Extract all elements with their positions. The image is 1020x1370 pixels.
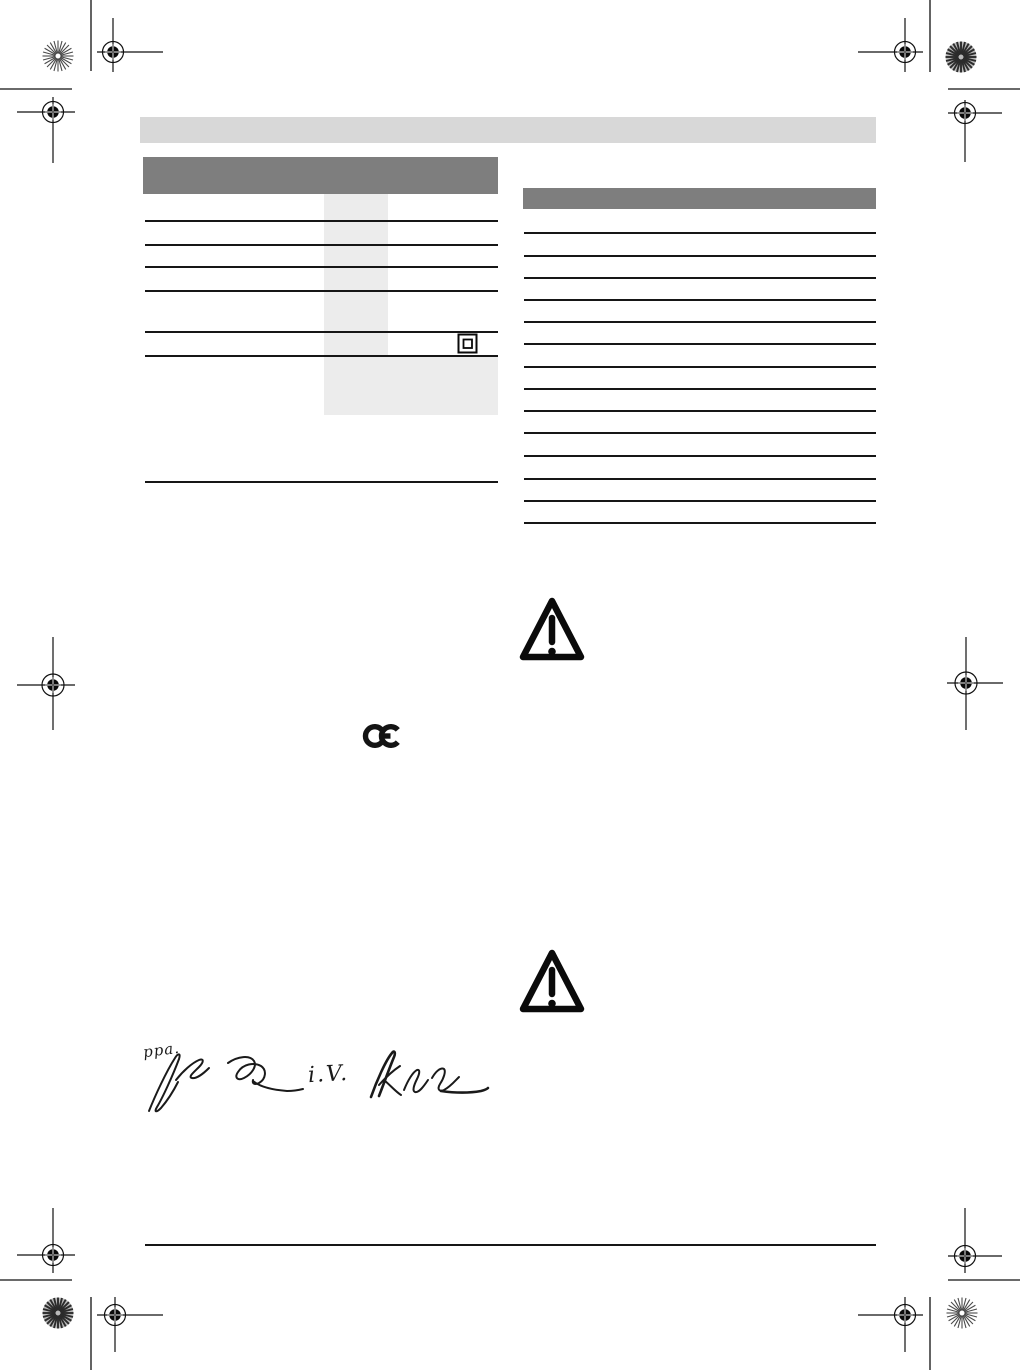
double-insulation-icon: [459, 335, 477, 353]
scanned-page: ppa. i.V.: [0, 0, 1020, 1370]
trim-lines: [0, 0, 1020, 1370]
registration-crosshair-icon: [858, 18, 923, 72]
signature-scrawl-right: [371, 1052, 488, 1097]
ce-mark-icon: [365, 727, 397, 746]
signature-scrawl-left: [149, 1054, 303, 1111]
calibration-star-icon: [43, 41, 74, 72]
registration-crosshair-icon: [948, 1208, 1002, 1273]
registration-crosshair-icon: [947, 637, 1003, 730]
signature-prefix-iv: i.V.: [307, 1061, 349, 1088]
registration-crosshair-icon: [17, 1208, 75, 1273]
registration-crosshair-icon: [17, 97, 75, 163]
registration-crosshair-icon: [858, 1297, 923, 1352]
registration-crosshair-icon: [17, 637, 75, 730]
warning-triangle-icon: [523, 601, 581, 657]
print-marks-layer: [0, 0, 1020, 1370]
calibration-star-icon: [946, 42, 977, 73]
warning-triangle-icon: [523, 953, 581, 1009]
registration-crosshair-icon: [97, 18, 163, 72]
registration-crosshair-icon: [97, 1297, 163, 1352]
registration-crosshair-icon: [948, 100, 1002, 162]
calibration-star-icon: [43, 1298, 74, 1329]
calibration-star-icon: [947, 1298, 978, 1329]
